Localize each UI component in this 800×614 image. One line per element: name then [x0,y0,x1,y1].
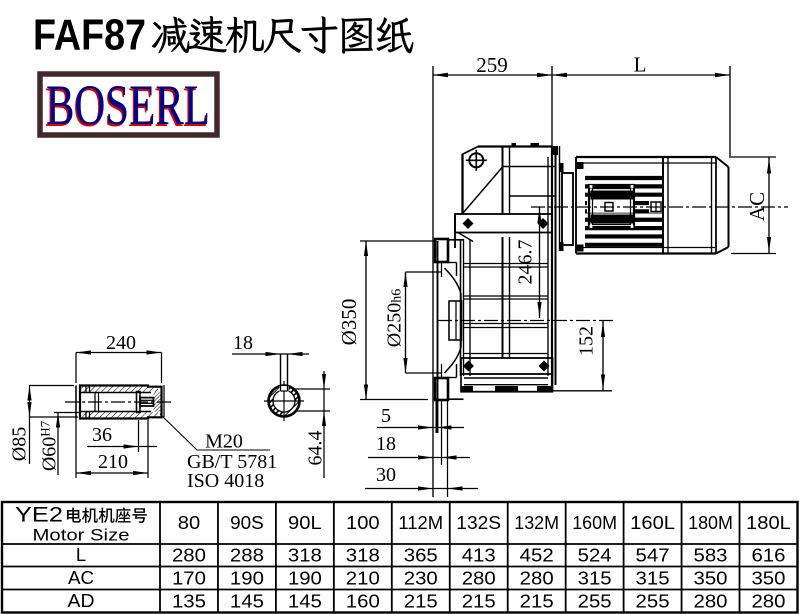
svg-text:112M: 112M [398,513,443,533]
svg-text:132M: 132M [514,513,559,533]
svg-text:90S: 90S [230,513,264,533]
svg-text:365: 365 [404,545,438,566]
svg-text:145: 145 [288,591,322,612]
svg-text:30: 30 [376,464,396,486]
svg-text:145: 145 [230,591,264,612]
svg-text:Motor Size: Motor Size [33,527,130,545]
svg-text:18: 18 [233,332,253,354]
svg-text:5: 5 [381,405,391,427]
svg-text:18: 18 [376,433,396,455]
svg-text:583: 583 [694,545,728,566]
svg-text:160: 160 [346,591,380,612]
svg-text:547: 547 [636,545,670,566]
svg-text:180L: 180L [746,513,791,533]
svg-text:240: 240 [106,332,136,354]
svg-text:413: 413 [462,545,496,566]
svg-text:AC: AC [68,567,94,588]
svg-text:170: 170 [172,568,206,589]
svg-text:AC: AC [745,192,769,221]
svg-text:132S: 132S [456,513,501,533]
svg-text:452: 452 [520,545,554,566]
svg-text:80: 80 [178,513,200,533]
svg-text:280: 280 [694,591,728,612]
svg-text:616: 616 [751,545,785,566]
svg-text:215: 215 [462,591,496,612]
svg-text:YE2: YE2 [15,504,63,527]
svg-text:259: 259 [476,53,508,77]
svg-text:350: 350 [694,568,728,589]
svg-text:M20: M20 [205,431,243,453]
svg-text:315: 315 [578,568,612,589]
svg-text:255: 255 [578,591,612,612]
svg-text:210: 210 [346,568,380,589]
svg-text:ISO 4018: ISO 4018 [187,470,264,492]
svg-text:Ø350: Ø350 [337,299,361,346]
svg-text:FAF87: FAF87 [33,11,146,60]
svg-text:AD: AD [68,590,95,611]
svg-text:280: 280 [751,591,785,612]
svg-text:280: 280 [462,568,496,589]
svg-text:L: L [634,53,647,77]
svg-text:180M: 180M [688,513,733,533]
svg-text:135: 135 [172,591,206,612]
svg-text:152: 152 [576,326,598,356]
svg-text:524: 524 [578,545,612,566]
svg-text:315: 315 [636,568,670,589]
svg-text:215: 215 [520,591,554,612]
svg-text:215: 215 [404,591,438,612]
svg-text:BOSERL: BOSERL [46,74,210,137]
svg-text:36: 36 [92,424,112,446]
svg-text:350: 350 [751,568,785,589]
svg-text:100: 100 [346,513,380,533]
svg-text:190: 190 [230,568,264,589]
svg-text:64.4: 64.4 [305,431,327,466]
svg-text:Ø85: Ø85 [9,427,31,461]
svg-text:L: L [76,544,86,565]
svg-text:190: 190 [288,568,322,589]
svg-text:318: 318 [346,545,380,566]
svg-text:160M: 160M [572,513,617,533]
svg-text:280: 280 [520,568,554,589]
svg-text:246.7: 246.7 [515,240,537,285]
svg-text:210: 210 [98,451,128,473]
svg-text:288: 288 [230,545,264,566]
svg-text:160L: 160L [630,513,675,533]
svg-text:90L: 90L [288,513,322,533]
svg-text:255: 255 [636,591,670,612]
svg-text:230: 230 [404,568,438,589]
svg-text:318: 318 [288,545,322,566]
svg-text:280: 280 [172,545,206,566]
